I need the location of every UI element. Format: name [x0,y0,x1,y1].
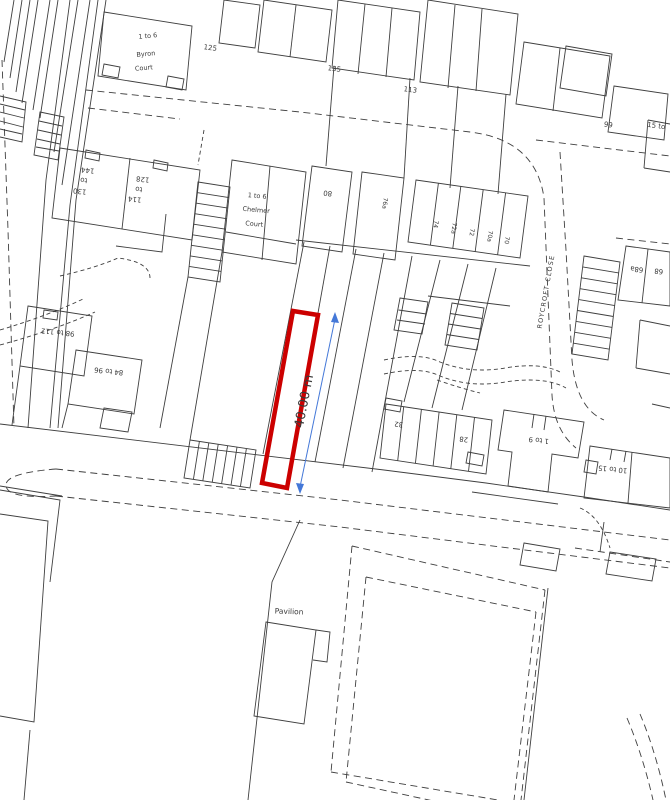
house-1-9-building [498,410,584,492]
label-144: 144 [80,165,95,174]
label-135: 135 [327,64,341,74]
dimension-arrow-top [331,312,339,323]
label-15-to: 15 to [647,121,666,131]
chelmer-court-group [160,160,306,440]
label-70: 70 [503,236,511,245]
flats-block-west [0,130,204,345]
site-plan-map: 1 to 6ByronCourt1251351139915 to144to130… [0,0,670,800]
label-68: 68 [654,267,664,276]
house-80-building [302,166,352,252]
terrace-70-74 [408,180,528,258]
road-dashed-south [56,496,670,568]
garden-boundaries-north [326,66,506,194]
main-road [0,424,670,582]
label-68a: 68a [630,264,644,273]
pavilion-building [254,622,316,724]
label-72a: 72a [449,222,457,234]
label-1-9: 1 to 9 [528,435,549,445]
railway-lines [0,0,106,428]
label-32: 32 [394,420,404,429]
label-70a: 70a [485,230,493,242]
label-76a: 76a [380,197,388,209]
house-99-building [560,46,612,96]
block-84-96 [68,350,142,414]
label-byron-court: Court [135,63,154,73]
label-99: 99 [603,120,613,129]
label-pavilion: Pavilion [275,607,304,617]
road-dashed-north [56,469,670,540]
label-80: 80 [323,189,333,198]
label-roycroft-close: ROYCROFT CLOSE [536,254,557,329]
label-28: 28 [459,435,469,444]
label-10-15: 10 to 15 [598,463,628,474]
label-byron-name: Byron [136,49,156,59]
label-byron-range: 1 to 6 [138,31,158,41]
dimension-arrow-bottom [296,483,304,494]
label-128: 128 [136,174,150,183]
road-frontage-north-east [384,470,670,510]
label-130: 130 [73,186,87,195]
label-98-112: 98 to 112 [41,326,75,337]
label-125: 125 [203,43,217,53]
label-74: 74 [432,220,440,229]
label-128-to: to [135,185,143,194]
recreation-west-boundary [248,520,300,800]
label-84-96: 84 to 96 [93,365,124,376]
top-street-and-roycroft-west [86,90,576,448]
south-parcels [0,508,670,800]
label-chelmer-court: Court [245,219,264,229]
label-113: 113 [403,85,417,95]
label-chelmer-name: Chelmer [242,205,270,215]
label-114: 114 [127,194,142,203]
houses-80-70 [302,166,566,388]
label-72: 72 [468,228,476,237]
label-chelmer-range: 1 to 6 [247,191,267,201]
label-144-to: to [80,176,88,185]
southwest-building [0,514,48,722]
roycroft-east [560,152,604,420]
